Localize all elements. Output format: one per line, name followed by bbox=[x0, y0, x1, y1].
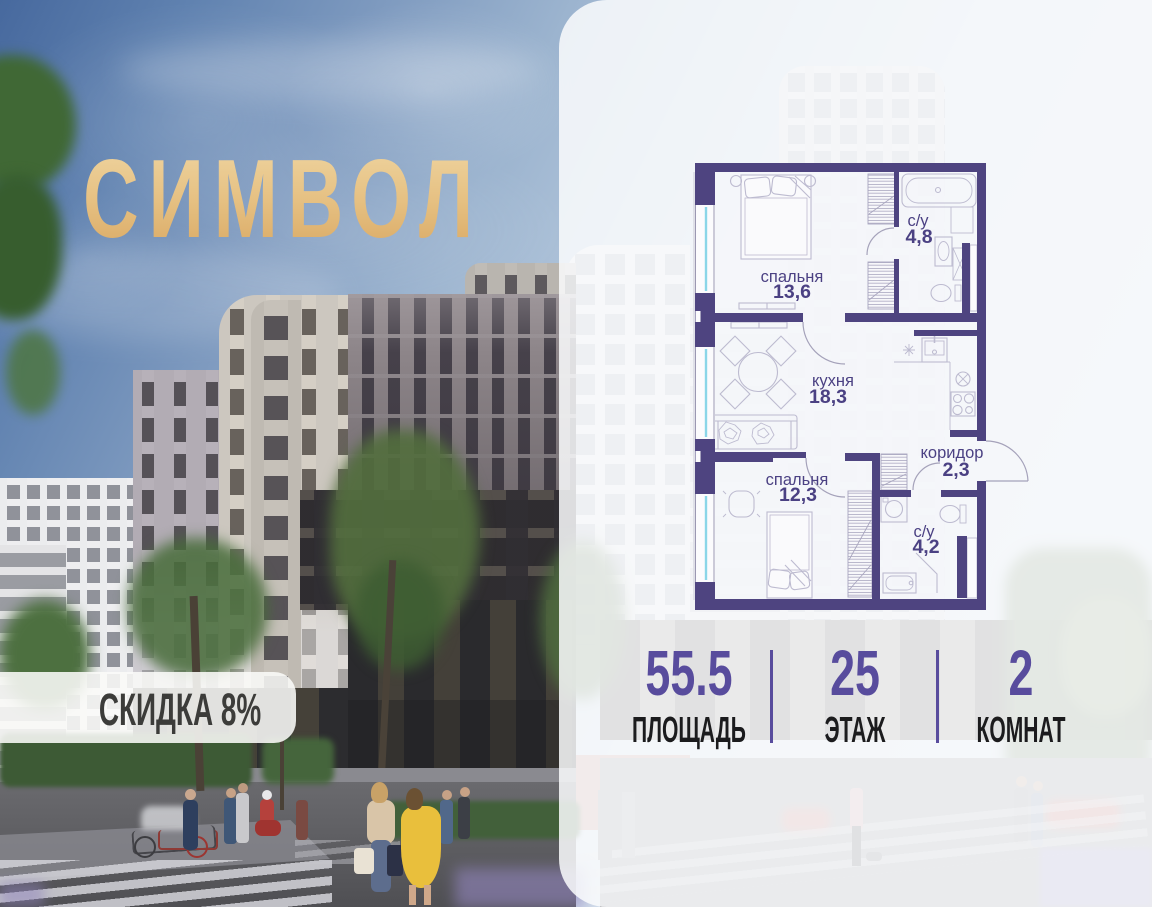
svg-text:2,3: 2,3 bbox=[942, 459, 969, 481]
svg-text:13,6: 13,6 bbox=[773, 281, 811, 303]
svg-text:12,3: 12,3 bbox=[779, 484, 817, 506]
svg-text:4,8: 4,8 bbox=[905, 226, 932, 248]
svg-text:18,3: 18,3 bbox=[809, 386, 847, 408]
svg-text:4,2: 4,2 bbox=[912, 536, 939, 558]
